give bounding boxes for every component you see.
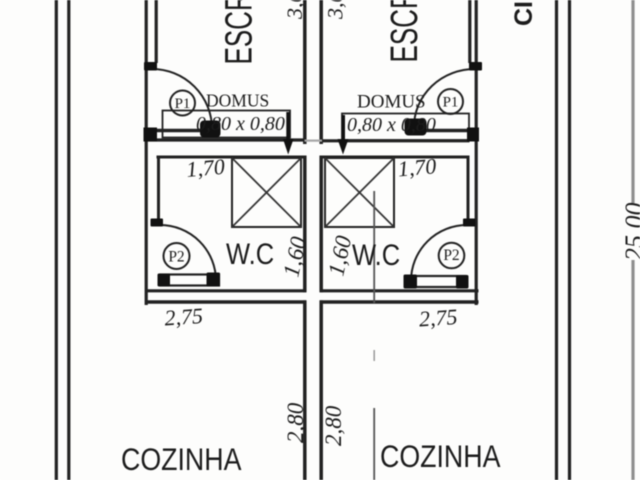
svg-text:DOMUS: DOMUS [206, 91, 269, 111]
svg-text:1,70: 1,70 [185, 154, 226, 182]
svg-text:P1: P1 [175, 96, 191, 112]
svg-text:2,80: 2,80 [321, 405, 346, 446]
svg-text:0,80 x 0,80: 0,80 x 0,80 [347, 114, 436, 136]
svg-text:2,75: 2,75 [164, 303, 204, 331]
svg-text:P2: P2 [443, 247, 459, 264]
svg-text:W.C: W.C [226, 237, 274, 270]
svg-text:ESCRITÓRIO: ESCRITÓRIO [217, 0, 260, 65]
svg-text:0,80 x 0,80: 0,80 x 0,80 [196, 113, 285, 135]
svg-text:CIRCULAÇÃO: CIRCULAÇÃO [508, 0, 538, 26]
svg-text:P2: P2 [168, 249, 184, 266]
svg-text:W.C: W.C [352, 238, 400, 271]
svg-text:25,00: 25,00 [620, 203, 640, 262]
svg-text:1,70: 1,70 [397, 153, 438, 181]
svg-text:2,75: 2,75 [418, 304, 458, 332]
svg-text:COZINHA: COZINHA [380, 440, 501, 474]
svg-text:3,00: 3,00 [323, 0, 348, 20]
svg-text:ESCRITÓRIO: ESCRITÓRIO [382, 0, 425, 63]
svg-text:3,00: 3,00 [282, 0, 307, 20]
svg-text:COZINHA: COZINHA [121, 443, 242, 477]
svg-text:P1: P1 [443, 95, 459, 111]
svg-text:2,80: 2,80 [283, 402, 308, 443]
svg-text:DOMUS: DOMUS [357, 92, 426, 113]
